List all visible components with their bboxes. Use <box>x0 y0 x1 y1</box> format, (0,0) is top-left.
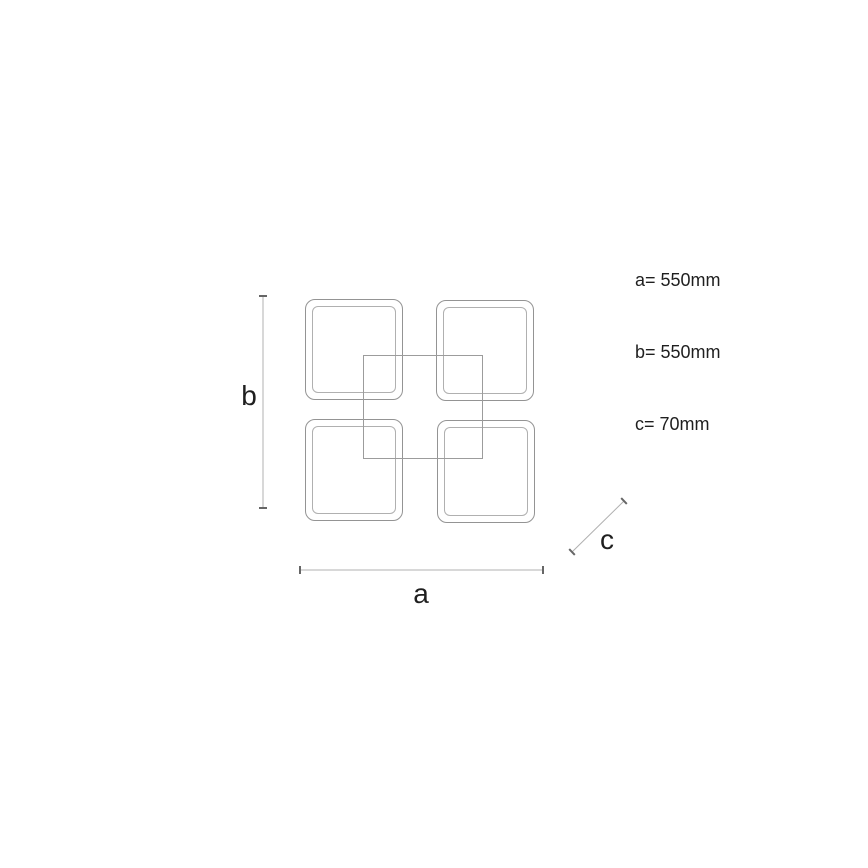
dimension-label-a: a <box>404 577 438 611</box>
dimension-label-b: b <box>232 379 266 413</box>
dimension-lines-overlay <box>0 0 868 868</box>
dimension-label-c: c <box>590 523 624 557</box>
dimension-diagram: a= 550mm b= 550mm c= 70mm a b c <box>0 0 868 868</box>
